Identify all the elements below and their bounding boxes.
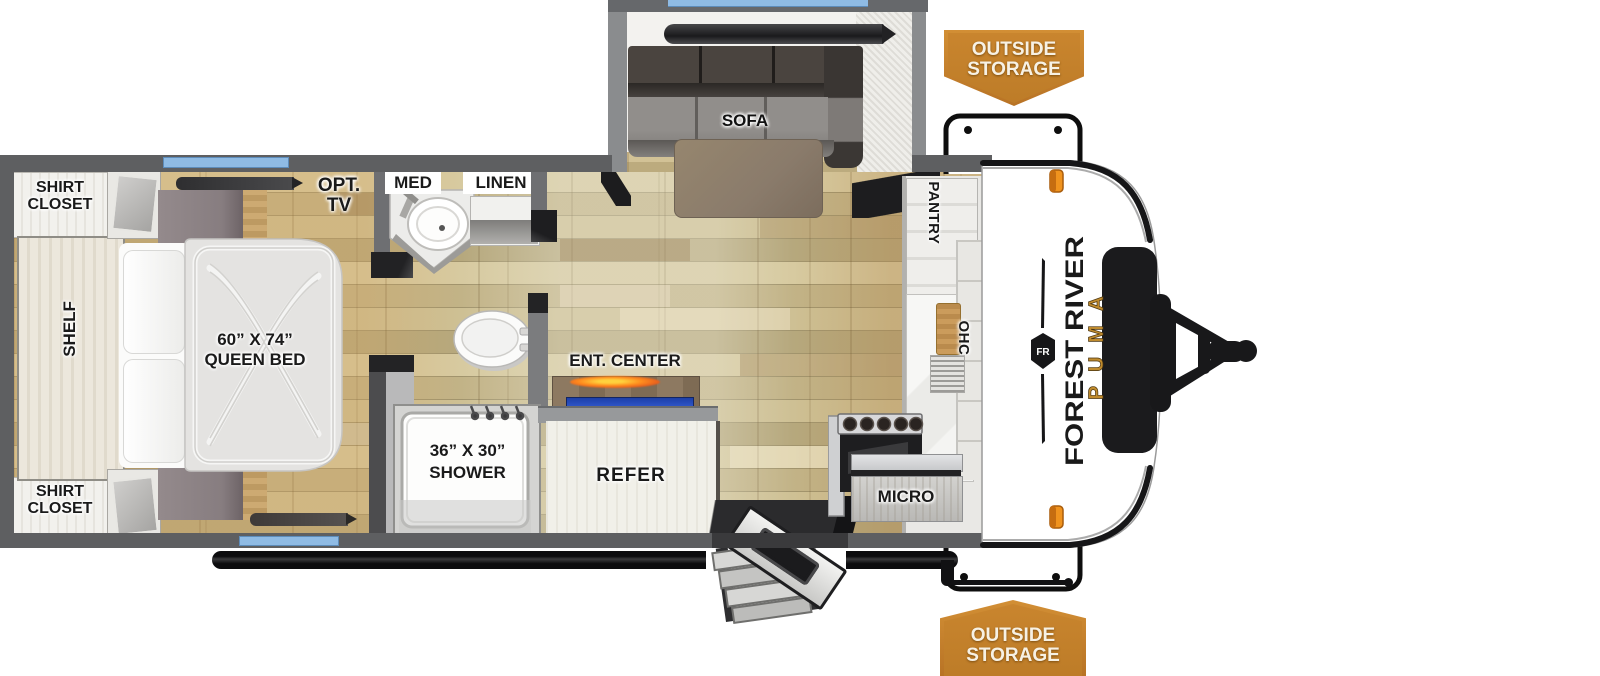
svg-text:PUMA: PUMA (1085, 282, 1108, 400)
svg-text:FR: FR (1036, 347, 1050, 358)
